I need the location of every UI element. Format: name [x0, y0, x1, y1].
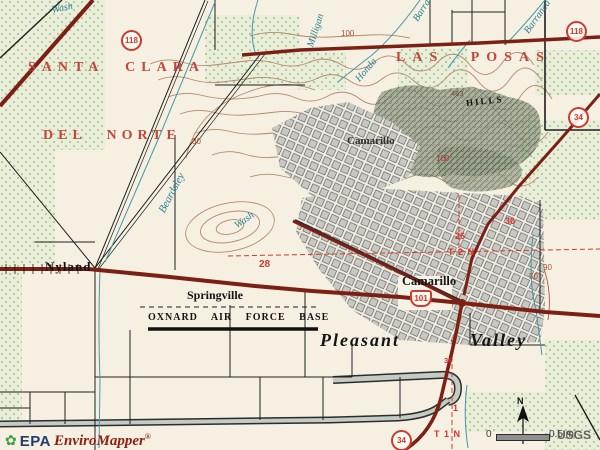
map-canvas[interactable]: SANTA CLARA DEL NORTE LAS POSAS Nyland S…: [0, 0, 600, 450]
place-label-oxnard-afb: OXNARD AIR FORCE BASE: [148, 313, 329, 323]
usgs-credit: USGS: [557, 428, 591, 442]
contour-label-100: 100: [341, 30, 354, 38]
contour-label-90: 90: [543, 264, 552, 272]
township-label-t2n: T 2 N: [448, 248, 475, 257]
place-label-camarillo-heights: Camarillo: [347, 136, 395, 147]
place-label-valley: Valley: [470, 331, 527, 349]
region-label-santa-clara: SANTA CLARA: [28, 61, 205, 75]
route-shield-34-east: 34: [568, 107, 589, 128]
region-label-las-posas: LAS POSAS: [396, 51, 551, 65]
place-label-camarillo: Camarillo: [402, 275, 456, 288]
route-shield-34-south-number: 34: [397, 436, 406, 445]
contour-label-50: 50: [529, 273, 538, 281]
route-shield-118-west: 118: [121, 30, 142, 51]
section-label-36: 36: [444, 357, 452, 365]
section-label-26: 26: [455, 232, 465, 241]
epa-logo-text: EPA: [20, 433, 51, 450]
route-shield-34-south: 34: [391, 430, 412, 450]
epa-flower-icon: ✿: [5, 434, 17, 448]
region-label-del-norte: DEL NORTE: [43, 129, 181, 143]
route-shield-118-west-number: 118: [125, 36, 138, 45]
route-shield-118-east: 118: [566, 21, 587, 42]
route-shield-34-east-number: 34: [574, 113, 583, 122]
epa-enviromapper-logo[interactable]: ✿ EPA EnviroMapper®: [5, 432, 151, 450]
scalebar-zero: 0: [486, 429, 492, 440]
township-label-t1n: T 1 N: [434, 430, 461, 439]
place-label-nyland: Nyland: [45, 260, 91, 273]
place-label-pleasant: Pleasant: [320, 331, 400, 349]
enviromapper-wordmark: EnviroMapper: [54, 433, 145, 449]
contour-label-80: 80: [192, 138, 201, 146]
route-shield-us101: 101: [410, 290, 432, 307]
place-label-springville: Springville: [187, 289, 243, 301]
north-label: N: [517, 396, 524, 406]
route-shield-118-east-number: 118: [570, 27, 583, 36]
section-label-28: 28: [259, 260, 270, 270]
route-shield-us101-number: 101: [414, 294, 427, 303]
section-label-30: 30: [505, 217, 515, 226]
scalebar: [496, 434, 550, 441]
spot-elevation-463: 463: [451, 90, 464, 98]
registered-mark: ®: [145, 432, 151, 441]
section-label-1: 1: [453, 404, 458, 413]
contour-label-100b: 100: [436, 155, 449, 163]
enviromapper-logo-text: EnviroMapper®: [54, 432, 151, 450]
